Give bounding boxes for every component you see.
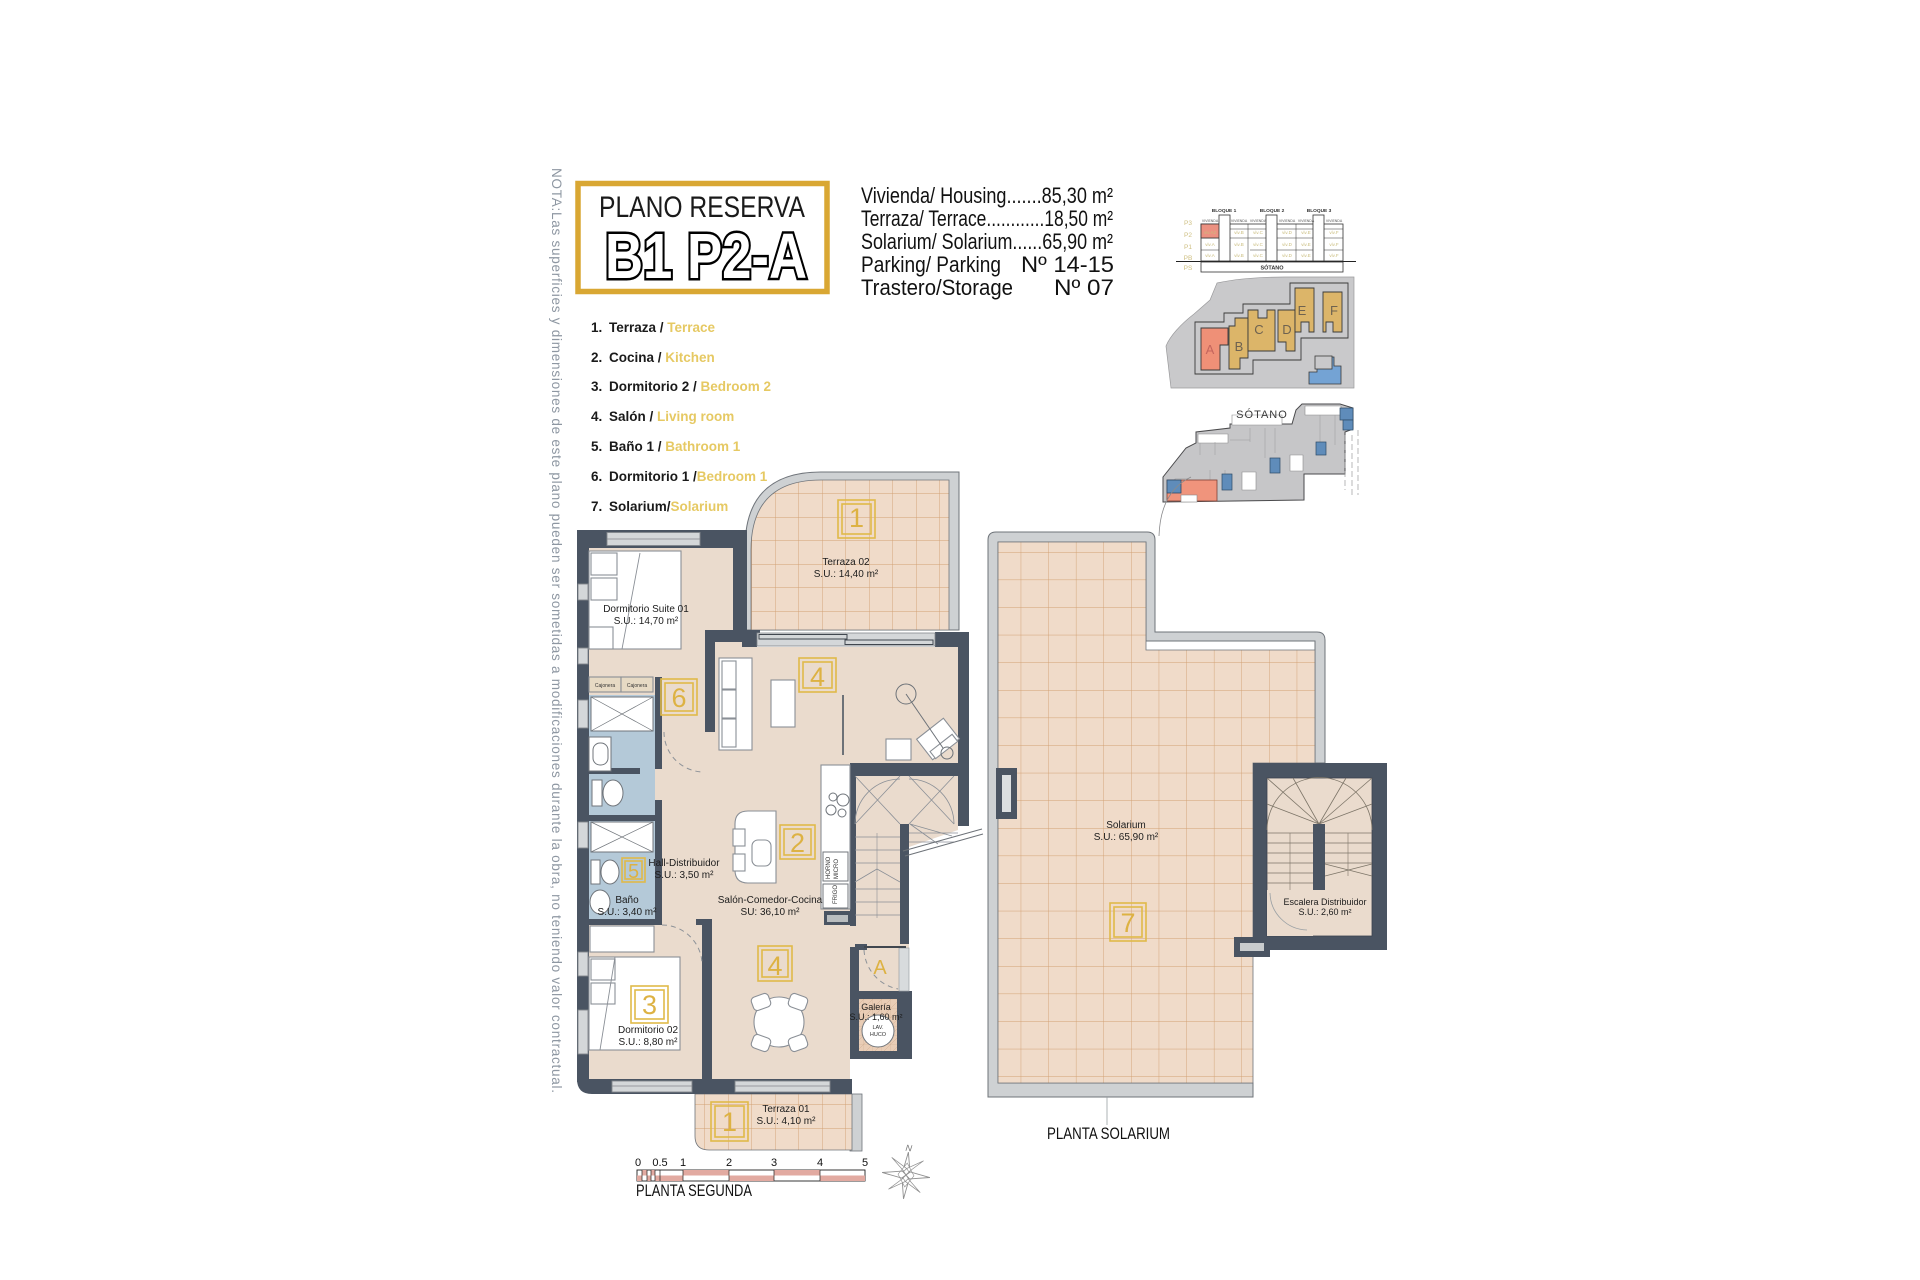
svg-text:P1: P1 — [1184, 244, 1192, 251]
svg-text:LAV.: LAV. — [872, 1025, 883, 1031]
svg-text:viv.B: viv.B — [1234, 230, 1243, 235]
svg-text:1: 1 — [680, 1157, 686, 1169]
svg-text:HORNO: HORNO — [826, 856, 832, 879]
svg-text:Baño 1 / Bathroom 1: Baño 1 / Bathroom 1 — [609, 439, 741, 454]
svg-text:VIVIENDA: VIVIENDA — [1298, 219, 1315, 223]
svg-text:4: 4 — [767, 951, 782, 981]
svg-text:FRIGO: FRIGO — [833, 885, 839, 904]
svg-text:Dormitorio 02: Dormitorio 02 — [618, 1025, 678, 1036]
svg-text:BLOQUE 2: BLOQUE 2 — [1260, 208, 1285, 214]
svg-text:VIVIENDA: VIVIENDA — [1202, 219, 1219, 223]
svg-text:VIVIENDA: VIVIENDA — [1326, 219, 1343, 223]
svg-text:1: 1 — [849, 503, 864, 533]
svg-text:PS: PS — [1184, 265, 1193, 272]
svg-text:viv.A: viv.A — [1205, 253, 1214, 258]
svg-text:Terraza/ Terrace............18: Terraza/ Terrace............18,50 m² — [861, 206, 1113, 231]
svg-text:0: 0 — [635, 1157, 641, 1169]
svg-text:SU: 36,10 m²: SU: 36,10 m² — [741, 907, 801, 918]
svg-text:P2: P2 — [1184, 232, 1192, 239]
svg-text:NOTA:Las superficies y dimensi: NOTA:Las superficies y dimensiones de es… — [549, 168, 564, 1094]
svg-text:Parking/ Parking: Parking/ Parking — [861, 252, 1001, 277]
svg-text:Salón / Living room: Salón / Living room — [609, 409, 734, 424]
svg-text:Terraza 01: Terraza 01 — [762, 1104, 810, 1115]
svg-text:viv.F: viv.F — [1329, 230, 1338, 235]
svg-text:viv.A: viv.A — [1205, 242, 1214, 247]
svg-text:3: 3 — [642, 990, 657, 1020]
svg-text:Trastero/Storage: Trastero/Storage — [861, 275, 1013, 300]
svg-text:HUCO: HUCO — [870, 1032, 887, 1038]
svg-text:MICRO: MICRO — [834, 859, 840, 879]
svg-text:Solarium/ Solarium......65,90: Solarium/ Solarium......65,90 m² — [861, 229, 1113, 254]
svg-text:viv.E: viv.E — [1301, 242, 1310, 247]
svg-text:viv.C: viv.C — [1253, 242, 1263, 247]
svg-text:viv.B: viv.B — [1234, 253, 1243, 258]
svg-text:BLOQUE 3: BLOQUE 3 — [1307, 208, 1332, 214]
svg-text:S.U.: 3,50 m²: S.U.: 3,50 m² — [655, 870, 715, 881]
svg-text:viv.D: viv.D — [1282, 230, 1292, 235]
svg-text:5.: 5. — [591, 439, 602, 454]
svg-text:Solarium: Solarium — [1106, 820, 1145, 831]
svg-text:SÓTANO: SÓTANO — [1236, 408, 1288, 421]
svg-text:3.: 3. — [591, 379, 602, 394]
svg-text:Terraza / Terrace: Terraza / Terrace — [609, 320, 716, 335]
svg-text:4: 4 — [817, 1157, 823, 1169]
svg-text:Cocina / Kitchen: Cocina / Kitchen — [609, 350, 715, 365]
svg-text:viv.C: viv.C — [1253, 253, 1263, 258]
svg-text:P3: P3 — [1184, 220, 1192, 227]
svg-text:viv.D: viv.D — [1282, 253, 1292, 258]
svg-text:4.: 4. — [591, 409, 602, 424]
svg-text:7.: 7. — [591, 499, 602, 514]
svg-text:Escalera Distribuidor: Escalera Distribuidor — [1283, 897, 1366, 907]
svg-text:PB: PB — [1184, 255, 1193, 262]
svg-text:D: D — [1282, 322, 1291, 337]
svg-text:0.5: 0.5 — [652, 1157, 667, 1169]
svg-text:Nº 07: Nº 07 — [1054, 275, 1114, 300]
svg-text:Solarium/Solarium: Solarium/Solarium — [609, 499, 728, 514]
svg-text:viv.A2: viv.A2 — [1204, 230, 1216, 235]
svg-text:Salón-Comedor-Cocina: Salón-Comedor-Cocina — [718, 895, 823, 906]
svg-text:A: A — [873, 957, 887, 979]
svg-text:4: 4 — [810, 662, 825, 692]
svg-text:A: A — [1206, 342, 1215, 357]
svg-text:2.: 2. — [591, 350, 602, 365]
svg-text:7: 7 — [1120, 908, 1135, 938]
svg-text:6.: 6. — [591, 469, 602, 484]
svg-text:S.U.: 4,10 m²: S.U.: 4,10 m² — [757, 1116, 817, 1127]
svg-text:BLOQUE 1: BLOQUE 1 — [1212, 208, 1237, 214]
svg-text:viv.B: viv.B — [1234, 242, 1243, 247]
svg-text:S.U.: 8,80 m²: S.U.: 8,80 m² — [619, 1037, 679, 1048]
svg-text:B: B — [1235, 339, 1244, 354]
svg-text:Cajonera: Cajonera — [627, 683, 648, 689]
svg-text:3: 3 — [771, 1157, 777, 1169]
svg-text:5: 5 — [862, 1157, 868, 1169]
svg-text:S.U.: 1,60 m²: S.U.: 1,60 m² — [849, 1012, 902, 1022]
svg-text:VIVIENDA: VIVIENDA — [1231, 219, 1248, 223]
svg-text:VIVIENDA: VIVIENDA — [1250, 219, 1267, 223]
svg-text:Dormitorio Suite 01: Dormitorio Suite 01 — [603, 604, 689, 615]
svg-text:Cajonera: Cajonera — [595, 683, 616, 689]
svg-text:SÓTANO: SÓTANO — [1260, 264, 1284, 272]
svg-text:S.U.: 2,60 m²: S.U.: 2,60 m² — [1298, 907, 1351, 917]
svg-text:C: C — [1254, 322, 1263, 337]
svg-text:viv.E: viv.E — [1301, 253, 1310, 258]
svg-text:S.U.: 3,40 m²: S.U.: 3,40 m² — [598, 907, 658, 918]
svg-text:B1 P2-A: B1 P2-A — [605, 220, 807, 292]
svg-text:2: 2 — [790, 828, 805, 858]
svg-text:Vivienda/ Housing.......85,30: Vivienda/ Housing.......85,30 m² — [861, 183, 1113, 208]
svg-text:6: 6 — [671, 683, 686, 713]
svg-text:viv.E: viv.E — [1301, 230, 1310, 235]
svg-text:PLANTA SOLARIUM: PLANTA SOLARIUM — [1047, 1124, 1170, 1143]
svg-text:E: E — [1298, 303, 1307, 318]
svg-text:Nº 14-15: Nº 14-15 — [1021, 252, 1114, 277]
svg-text:viv.C: viv.C — [1253, 230, 1263, 235]
svg-text:F: F — [1330, 303, 1338, 318]
svg-text:viv.F: viv.F — [1329, 242, 1338, 247]
svg-text:Dormitorio 1 /Bedroom 1: Dormitorio 1 /Bedroom 1 — [609, 469, 768, 484]
svg-text:S.U.: 65,90 m²: S.U.: 65,90 m² — [1094, 832, 1159, 843]
svg-text:Dormitorio 2 / Bedroom 2: Dormitorio 2 / Bedroom 2 — [609, 379, 771, 394]
svg-text:2: 2 — [726, 1157, 732, 1169]
svg-text:S.U.: 14,40 m²: S.U.: 14,40 m² — [814, 569, 879, 580]
svg-text:1: 1 — [722, 1107, 737, 1137]
svg-text:Baño: Baño — [615, 895, 639, 906]
svg-text:VIVIENDA: VIVIENDA — [1279, 219, 1296, 223]
svg-text:1.: 1. — [591, 320, 602, 335]
svg-text:Galería: Galería — [861, 1002, 891, 1012]
svg-text:Terraza 02: Terraza 02 — [822, 557, 870, 568]
svg-text:PLANTA SEGUNDA: PLANTA SEGUNDA — [636, 1181, 752, 1200]
svg-text:viv.D: viv.D — [1282, 242, 1292, 247]
svg-text:viv.F: viv.F — [1329, 253, 1338, 258]
svg-text:Hall-Distribuidor: Hall-Distribuidor — [648, 858, 720, 869]
svg-text:S.U.: 14,70 m²: S.U.: 14,70 m² — [614, 616, 679, 627]
svg-text:5: 5 — [628, 861, 639, 883]
